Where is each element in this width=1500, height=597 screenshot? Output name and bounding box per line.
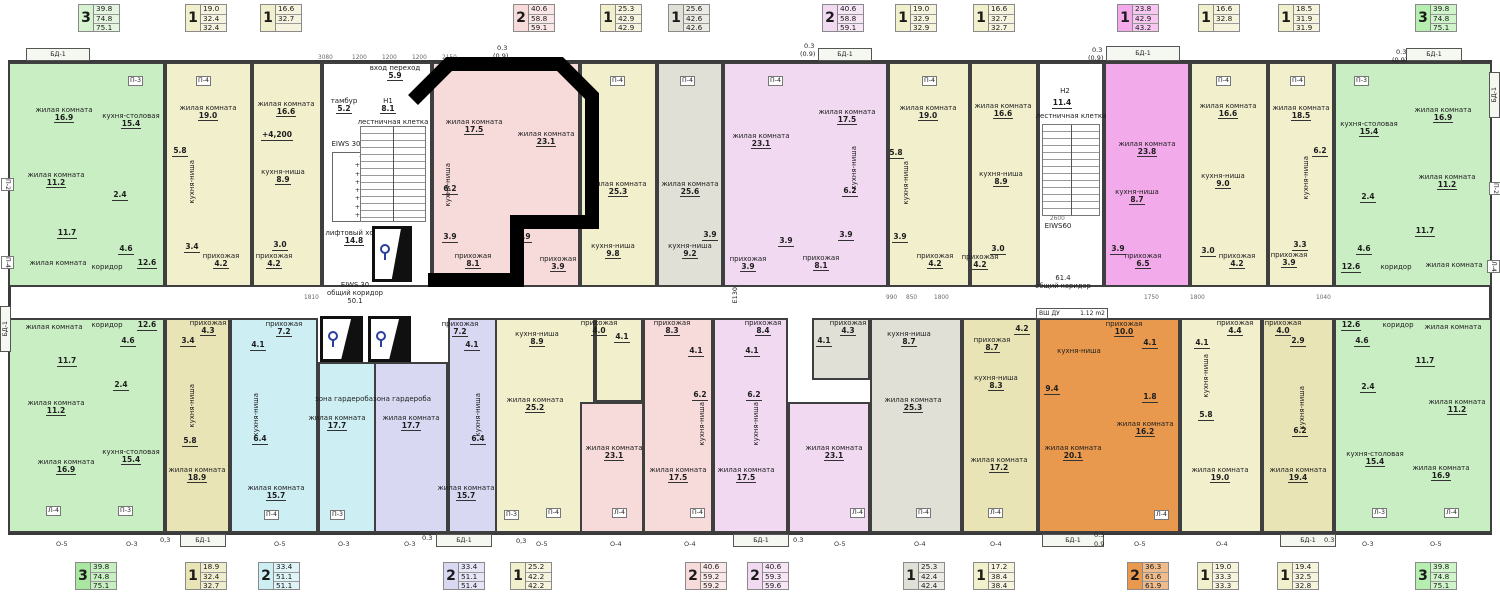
badge-area-value: 59.2 xyxy=(701,582,726,591)
apt-b13-region[interactable] xyxy=(1334,318,1492,533)
elevator-door-wedge xyxy=(381,318,409,360)
panel-marker: П-3 xyxy=(118,506,133,516)
badge-area-value: 32.7 xyxy=(276,15,301,25)
staircase xyxy=(360,126,426,222)
panel-marker: П-4 xyxy=(1,256,14,269)
section-mark-text: Е130 xyxy=(731,287,739,304)
offset-annotation: 0.3 xyxy=(804,42,814,50)
window-marker: О-3 xyxy=(1362,540,1374,548)
elevator-key-icon xyxy=(376,331,386,341)
window-marker: О-3 xyxy=(452,60,464,68)
badge-area-value: 38.4 xyxy=(989,582,1014,591)
badge-area-value: 75.1 xyxy=(1431,582,1456,591)
apartment-badge: 116.632.732.7 xyxy=(973,4,1015,32)
badge-room-count: 1 xyxy=(1278,563,1292,589)
corridor-label-line: EIWS 30 xyxy=(320,281,390,289)
badge-area-value: 31.9 xyxy=(1294,24,1319,33)
badge-areas: 36.361.661.9 xyxy=(1142,563,1168,589)
badge-room-count: 1 xyxy=(974,5,988,31)
balcony-label: БД-1 xyxy=(50,51,66,58)
apt-b3-region[interactable] xyxy=(230,318,318,533)
apartment-badge: 119.033.333.3 xyxy=(1197,562,1239,590)
panel-marker: П-4 xyxy=(264,510,279,520)
window-marker: О-5 xyxy=(1430,540,1442,548)
apt-b11-region[interactable] xyxy=(1180,318,1262,533)
corridor-label-line: 61.4 xyxy=(1028,274,1098,282)
balcony-label: БД-1 xyxy=(1135,50,1151,57)
apt-b12-region[interactable] xyxy=(1262,318,1334,533)
balcony-label: БД-1 xyxy=(1491,87,1498,103)
apt-a1-region[interactable] xyxy=(8,62,165,287)
badge-areas: 16.632.7 xyxy=(275,5,301,31)
window-marker: О-4 xyxy=(684,540,696,548)
badge-room-count: 3 xyxy=(1416,5,1430,31)
balcony: БД-1 xyxy=(26,48,90,61)
offset-annotation: 0.3 xyxy=(1094,531,1104,539)
badge-room-count: 2 xyxy=(1128,563,1142,589)
balcony: БД-1 xyxy=(1106,46,1180,61)
offset-annotation: 0.3 xyxy=(1396,48,1406,56)
corridor-label: EIWS 30общий коридор50.1 xyxy=(320,281,390,305)
apartment-badge: 236.361.661.9 xyxy=(1127,562,1169,590)
window-marker: О-5 xyxy=(274,540,286,548)
balcony-label: БД-1 xyxy=(837,51,853,58)
badge-room-count: 1 xyxy=(1199,5,1213,31)
balcony-label: БД-1 xyxy=(1300,537,1316,544)
dimension-label: 2150 xyxy=(442,55,457,61)
badge-area-value: 32.8 xyxy=(1293,582,1318,591)
panel-marker: П-4 xyxy=(690,508,705,518)
offset-annotation: 0.3 xyxy=(497,44,507,52)
offset-annotation: 0.3 xyxy=(1324,536,1334,544)
badge-room-count: 3 xyxy=(79,5,93,31)
apt-a2-region[interactable] xyxy=(165,62,252,287)
apartment-badge: 119.032.932.9 xyxy=(895,4,937,32)
apartment-badge: 233.451.151.4 xyxy=(443,562,485,590)
balcony-label: БД-1 xyxy=(195,537,211,544)
apt-b2-region[interactable] xyxy=(165,318,230,533)
panel-marker: П-4 xyxy=(922,76,937,86)
apt-b5-region[interactable] xyxy=(595,318,643,402)
dimension-label: 1800 xyxy=(1190,295,1205,301)
badge-areas: 16.632.732.7 xyxy=(988,5,1014,31)
badge-areas: 23.842.943.2 xyxy=(1132,5,1158,31)
panel-marker: П-4 xyxy=(196,76,211,86)
panel-marker: П-3 xyxy=(330,510,345,520)
badge-area-value xyxy=(1214,24,1239,31)
elevator-key-icon xyxy=(380,244,390,254)
dimension-label: 1750 xyxy=(1144,295,1159,301)
badge-area-value: 32.7 xyxy=(989,24,1014,33)
section-mark-e130: Е130 xyxy=(729,280,741,310)
offset-annotation: 0,3 xyxy=(160,536,170,544)
dimension-label: 1200 xyxy=(412,55,427,61)
apt-a4-region[interactable] xyxy=(432,62,580,287)
offset-annotation: 0.3 xyxy=(793,536,803,544)
panel-marker: Л-4 xyxy=(1487,260,1500,273)
dimension-label: 1200 xyxy=(352,55,367,61)
balcony-label: БД-1 xyxy=(1426,51,1442,58)
badge-room-count: 1 xyxy=(1279,5,1293,31)
badge-area-value: 59.6 xyxy=(763,582,788,591)
badge-areas: 33.451.151.1 xyxy=(273,563,299,589)
badge-area-value: 59.1 xyxy=(529,24,554,33)
window-marker: О-4 xyxy=(914,540,926,548)
badge-areas: 25.242.242.2 xyxy=(525,563,551,589)
offset-annotation: (0.9) xyxy=(1392,56,1407,64)
apartment-badge: 240.658.859.1 xyxy=(513,4,555,32)
apartment-badge: 123.842.943.2 xyxy=(1117,4,1159,32)
badge-room-count: 1 xyxy=(669,5,683,31)
apt-a8-region[interactable] xyxy=(888,62,970,287)
apt-a12-region[interactable] xyxy=(1268,62,1334,287)
panel-marker: П-3 xyxy=(1354,76,1369,86)
balcony: БД-1 xyxy=(1406,48,1462,61)
apt-a6-region[interactable] xyxy=(657,62,723,287)
apt-a7-region[interactable] xyxy=(723,62,888,287)
apartment-badge: 117.238.438.4 xyxy=(973,562,1015,590)
dimension-label: 3080 xyxy=(318,55,333,61)
dimension-label: 1800 xyxy=(934,295,949,301)
balcony: БД-1 xyxy=(818,48,872,61)
window-marker: О-3 xyxy=(126,540,138,548)
badge-areas: 25.342.442.4 xyxy=(918,563,944,589)
apt-b3-region[interactable] xyxy=(318,362,376,533)
corridor-label: 61.4общий коридор xyxy=(1028,274,1098,290)
panel-marker: Л-4 xyxy=(46,506,61,516)
window-marker: О-4 xyxy=(1216,540,1228,548)
panel-marker: Л-3 xyxy=(1372,508,1387,518)
elevator-shaft xyxy=(372,226,412,282)
offset-annotation: 0.9 xyxy=(1094,540,1104,548)
apartment-badge: 339.874.875.1 xyxy=(1415,562,1457,590)
window-marker: О-5 xyxy=(536,540,548,548)
panel-marker: П-4 xyxy=(1290,76,1305,86)
apartment-badge: 339.874.875.1 xyxy=(75,562,117,590)
panel-marker: Л-4 xyxy=(988,508,1003,518)
badge-areas: 40.658.859.1 xyxy=(837,5,863,31)
duct-shaft-label: ВШ ДУ1.12 m2 xyxy=(1036,308,1108,319)
elevator-key-icon xyxy=(328,331,338,341)
badge-room-count: 3 xyxy=(76,563,90,589)
badge-area-value: 59.1 xyxy=(838,24,863,33)
badge-room-count: 2 xyxy=(686,563,700,589)
corridor-label-line: общий коридор xyxy=(320,289,390,297)
badge-room-count: 2 xyxy=(259,563,273,589)
badge-area-value: 75.1 xyxy=(91,582,116,591)
window-marker: О-4 xyxy=(990,540,1002,548)
panel-marker: П-4 xyxy=(546,508,561,518)
apartment-badge: 119.032.432.4 xyxy=(185,4,227,32)
badge-room-count: 3 xyxy=(1416,563,1430,589)
window-marker: О-5 xyxy=(834,540,846,548)
badge-area-value: 33.3 xyxy=(1213,582,1238,591)
badge-areas: 40.658.859.1 xyxy=(528,5,554,31)
panel-marker: Л-4 xyxy=(612,508,627,518)
balcony-label: БД-1 xyxy=(753,537,769,544)
badge-room-count: 2 xyxy=(823,5,837,31)
badge-areas: 17.238.438.4 xyxy=(988,563,1014,589)
apt-a3-region[interactable] xyxy=(252,62,322,287)
panel-marker: Л-4 xyxy=(1444,508,1459,518)
apt-a11-region[interactable] xyxy=(1190,62,1268,287)
panel-marker: П-4 xyxy=(1216,76,1231,86)
badge-room-count: 1 xyxy=(904,563,918,589)
corridor-label-line: общий коридор xyxy=(1028,282,1098,290)
badge-area-value: 42.6 xyxy=(684,24,709,33)
apartment-badge: 240.658.859.1 xyxy=(822,4,864,32)
badge-areas: 25.342.942.9 xyxy=(615,5,641,31)
staircase xyxy=(1042,124,1100,216)
badge-area-value: 32.8 xyxy=(1214,15,1239,25)
badge-area-value: 75.1 xyxy=(1431,24,1456,33)
badge-area-value: 75.1 xyxy=(94,24,119,33)
badge-areas: 39.874.875.1 xyxy=(1430,563,1456,589)
apartment-badge: 119.432.532.8 xyxy=(1277,562,1319,590)
offset-annotation: (0.9) xyxy=(493,52,508,60)
balcony: БД-1 xyxy=(436,534,492,547)
badge-area-value: 43.2 xyxy=(1133,24,1158,33)
badge-areas: 19.432.532.8 xyxy=(1292,563,1318,589)
balcony: БД-1 xyxy=(733,534,789,547)
badge-area-value: 42.2 xyxy=(526,582,551,591)
balcony: БД-1 xyxy=(0,306,11,352)
panel-marker: П-4 xyxy=(916,508,931,518)
apartment-badge: 339.874.875.1 xyxy=(78,4,120,32)
offset-annotation: 0.3 xyxy=(1092,46,1102,54)
window-marker: О-5 xyxy=(56,540,68,548)
badge-area-value: 51.4 xyxy=(459,582,484,591)
badge-areas: 33.451.151.4 xyxy=(458,563,484,589)
badge-areas: 19.032.432.4 xyxy=(200,5,226,31)
badge-areas: 19.032.932.9 xyxy=(910,5,936,31)
badge-area-value: 61.9 xyxy=(1143,582,1168,591)
apt-a10-region[interactable] xyxy=(1104,62,1190,287)
apt-b1-region[interactable] xyxy=(8,318,165,533)
panel-marker: П-2 xyxy=(1489,182,1500,195)
balcony-label: БД-1 xyxy=(2,321,9,337)
badge-room-count: 1 xyxy=(896,5,910,31)
offset-annotation: (0.9) xyxy=(800,50,815,58)
dimension-label: 1040 xyxy=(1316,295,1331,301)
apt-b9-region[interactable] xyxy=(962,318,1038,533)
window-marker: О-4 xyxy=(610,540,622,548)
badge-area-value: 42.4 xyxy=(919,582,944,591)
apartment-badge: 339.874.875.1 xyxy=(1415,4,1457,32)
badge-room-count: 1 xyxy=(1118,5,1132,31)
panel-marker: П-3 xyxy=(128,76,143,86)
badge-areas: 39.874.875.1 xyxy=(93,5,119,31)
apt-a9-region[interactable] xyxy=(970,62,1038,287)
badge-room-count: 1 xyxy=(186,563,200,589)
badge-room-count: 1 xyxy=(601,5,615,31)
badge-areas: 40.659.359.6 xyxy=(762,563,788,589)
window-marker: О-5 xyxy=(1134,540,1146,548)
balcony: БД-1 xyxy=(180,534,226,547)
corridor-label-line: 50.1 xyxy=(320,297,390,305)
apartment-badge: 118.932.432.7 xyxy=(185,562,227,590)
badge-areas: 18.531.931.9 xyxy=(1293,5,1319,31)
badge-room-count: 2 xyxy=(514,5,528,31)
apartment-badge: 233.451.151.1 xyxy=(258,562,300,590)
apartment-badge: 116.632.8 xyxy=(1198,4,1240,32)
elevator-shaft xyxy=(320,316,363,362)
apartment-badge: 125.342.942.9 xyxy=(600,4,642,32)
badge-area-value: 32.7 xyxy=(201,582,226,591)
balcony: БД-1 xyxy=(1489,72,1500,118)
badge-room-count: 1 xyxy=(186,5,200,31)
badge-room-count: 1 xyxy=(974,563,988,589)
floor-plan-page: жилая комната16.9кухня-столовая15.4жилая… xyxy=(0,0,1500,597)
apartment-badge: 125.242.242.2 xyxy=(510,562,552,590)
panel-marker: П-4 xyxy=(610,76,625,86)
badge-areas: 39.874.875.1 xyxy=(90,563,116,589)
badge-area-value: 32.9 xyxy=(911,24,936,33)
badge-room-count: 1 xyxy=(1198,563,1212,589)
duct-name: ВШ ДУ xyxy=(1039,310,1060,317)
apt-b8-region[interactable] xyxy=(870,318,962,533)
panel-marker: Л-4 xyxy=(850,508,865,518)
panel-marker: П-3 xyxy=(504,510,519,520)
apartment-badge: 125.642.642.6 xyxy=(668,4,710,32)
apartment-badge: 240.659.359.6 xyxy=(747,562,789,590)
badge-room-count: 2 xyxy=(444,563,458,589)
apartment-badge: 116.632.7 xyxy=(260,4,302,32)
dimension-label: 1810 xyxy=(304,295,319,301)
badge-area-value: 51.1 xyxy=(274,582,299,591)
offset-annotation: (0.9) xyxy=(1088,54,1103,62)
dimension-label: 2600 xyxy=(1050,216,1065,222)
badge-areas: 16.632.8 xyxy=(1213,5,1239,31)
dimension-label: 1200 xyxy=(382,55,397,61)
badge-room-count: 1 xyxy=(511,563,525,589)
offset-annotation: 0.3 xyxy=(422,534,432,542)
badge-area-value xyxy=(276,24,301,31)
panel-marker: Л-4 xyxy=(1154,510,1169,520)
balcony-label: БД-1 xyxy=(456,537,472,544)
badge-areas: 18.932.432.7 xyxy=(200,563,226,589)
apartment-badge: 125.342.442.4 xyxy=(903,562,945,590)
badge-areas: 19.033.333.3 xyxy=(1212,563,1238,589)
apt-b7-region[interactable] xyxy=(713,318,788,533)
dimension-label: 850 xyxy=(906,295,917,301)
offset-annotation: 0,3 xyxy=(516,537,526,545)
apt-b4-region[interactable] xyxy=(374,362,448,533)
badge-areas: 40.659.259.2 xyxy=(700,563,726,589)
apt-b8-region[interactable] xyxy=(812,318,870,380)
apt-a5-region[interactable] xyxy=(580,62,657,287)
badge-areas: 39.874.875.1 xyxy=(1430,5,1456,31)
apartment-badge: 118.531.931.9 xyxy=(1278,4,1320,32)
dimension-label: 990 xyxy=(886,295,897,301)
panel-marker: П-4 xyxy=(768,76,783,86)
badge-area-value: 32.4 xyxy=(201,24,226,33)
apt-a13-region[interactable] xyxy=(1334,62,1492,287)
elevator-shaft xyxy=(368,316,411,362)
panel-marker: П-2 xyxy=(1,178,14,191)
badge-areas: 25.642.642.6 xyxy=(683,5,709,31)
elevator-door-wedge xyxy=(333,318,361,360)
apt-b10-region[interactable] xyxy=(1038,318,1180,533)
panel-marker: П-4 xyxy=(680,76,695,86)
window-marker: О-3 xyxy=(404,540,416,548)
window-marker: О-3 xyxy=(338,540,350,548)
badge-room-count: 2 xyxy=(748,563,762,589)
duct-area: 1.12 m2 xyxy=(1080,310,1105,317)
apt-b6-region[interactable] xyxy=(643,318,713,533)
badge-area-value: 42.9 xyxy=(616,24,641,33)
balcony-label: БД-1 xyxy=(1065,537,1081,544)
apartment-badge: 240.659.259.2 xyxy=(685,562,727,590)
elevator-door-wedge xyxy=(385,228,411,280)
badge-room-count: 1 xyxy=(261,5,275,31)
